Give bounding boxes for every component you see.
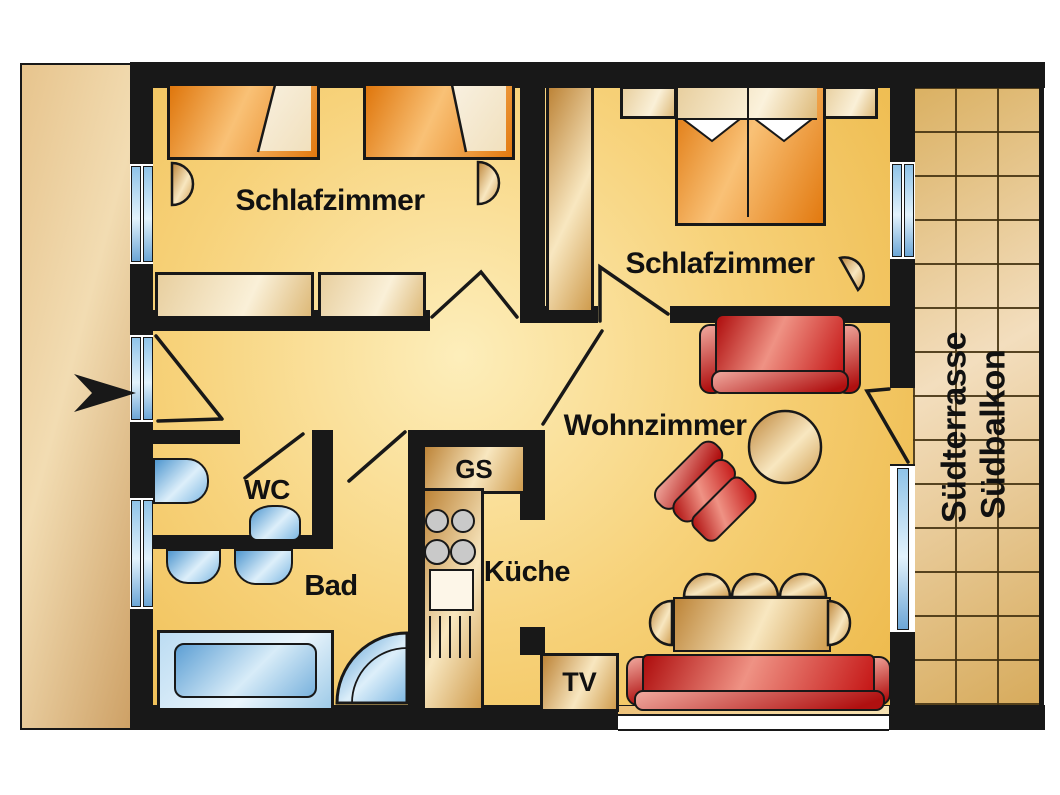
- door-bath: [349, 432, 405, 481]
- wall-lamp-icon: [172, 163, 193, 205]
- dining-chair: [684, 574, 730, 597]
- label-wc: WC: [227, 474, 307, 506]
- plan-linework: [0, 0, 1060, 795]
- door-bedroom-left: [432, 272, 517, 317]
- shower: [337, 633, 407, 703]
- label-terrace-2: Südbalkon: [975, 325, 1014, 545]
- door-terrace: [867, 389, 908, 462]
- double-bed-folds: [683, 119, 812, 141]
- dining-chair: [650, 601, 672, 645]
- entrance-arrow-icon: [74, 374, 136, 412]
- wall-lamp-icon: [478, 162, 499, 204]
- label-bedroom-right: Schlafzimmer: [595, 247, 845, 281]
- dining-chair: [780, 574, 826, 597]
- dining-chair: [732, 574, 778, 597]
- counter-lines: [430, 616, 470, 658]
- door-entrance: [156, 336, 222, 421]
- label-terrace-1: Südterrasse: [936, 318, 975, 538]
- bed-fold-lines: [258, 85, 466, 152]
- dining-chair: [828, 601, 850, 645]
- label-bedroom-left: Schlafzimmer: [205, 184, 455, 218]
- label-bath: Bad: [281, 570, 381, 603]
- door-wc: [245, 434, 303, 478]
- floor-plan: TV GS: [0, 0, 1060, 795]
- label-living: Wohnzimmer: [530, 409, 780, 443]
- label-kitchen: Küche: [452, 556, 602, 589]
